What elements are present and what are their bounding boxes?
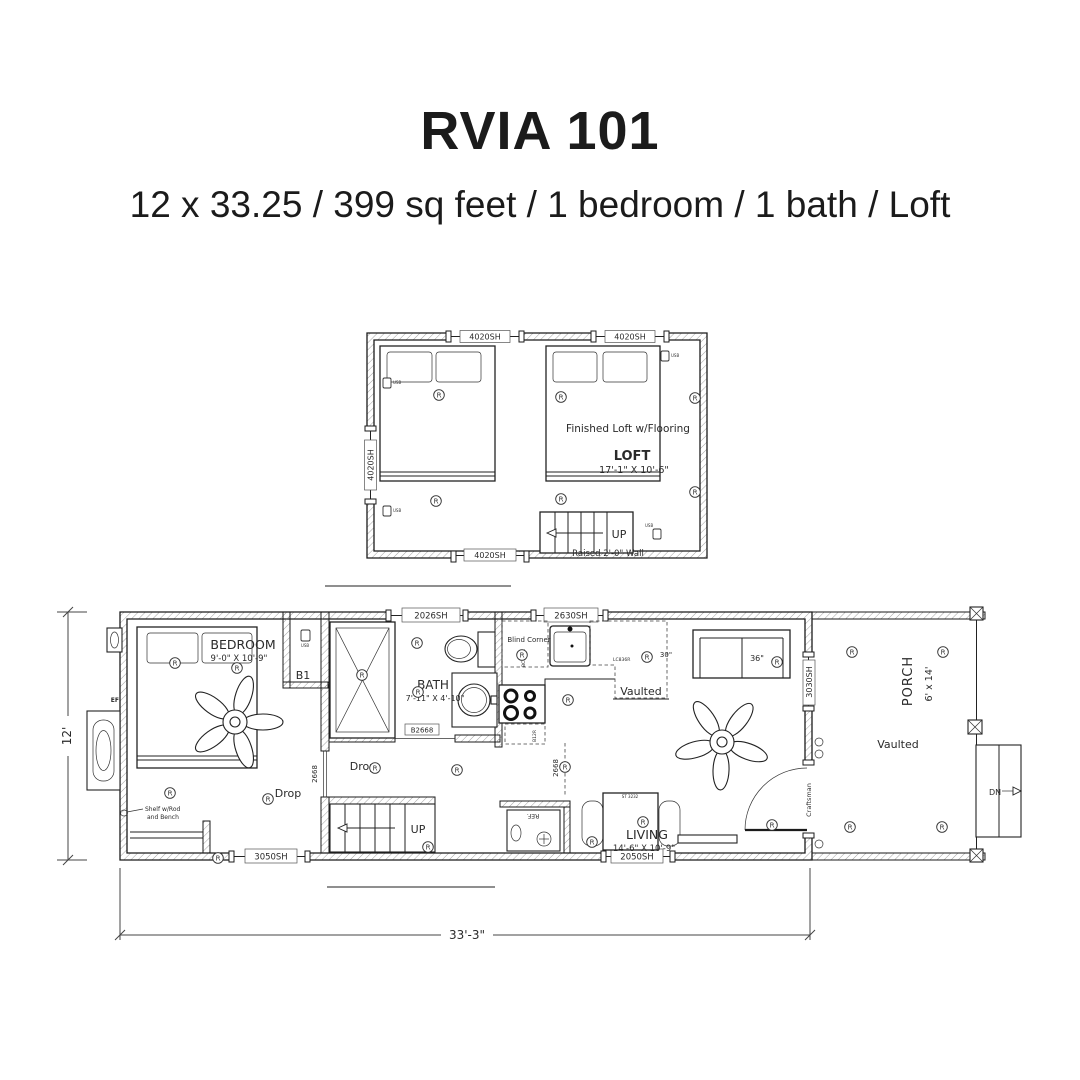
door-size-label: 2668: [311, 765, 319, 783]
recessed-light-symbol: R: [690, 393, 701, 404]
exterior-wall-fixture: [87, 711, 120, 790]
recessed-light-symbol: R: [413, 687, 424, 698]
svg-text:R: R: [168, 790, 173, 798]
recessed-light-symbol: R: [423, 842, 434, 853]
bedroom-name: BEDROOM: [210, 637, 275, 652]
door-size-label: B2668: [411, 727, 434, 735]
loft-window-label: 4020SH: [614, 333, 645, 342]
recessed-light-symbol: R: [556, 494, 567, 505]
porch-wall-outlets: [815, 738, 823, 848]
recessed-light-symbol: R: [560, 762, 571, 773]
loft-window-top-right: 4020SH: [591, 331, 669, 343]
svg-text:R: R: [770, 822, 775, 830]
recessed-light-symbol: R: [556, 392, 567, 403]
window-3050: 3050SH: [229, 849, 310, 863]
media-ledge: [678, 835, 737, 843]
porch-post: [970, 607, 983, 620]
loft-window-label: 4020SH: [474, 551, 505, 560]
svg-text:R: R: [693, 395, 698, 403]
usb-outlet: USB: [301, 630, 310, 648]
svg-text:R: R: [373, 765, 378, 773]
porch-name: PORCH: [901, 656, 916, 706]
recessed-light-symbol: R: [517, 650, 528, 661]
loft-window-left: 4020SH: [365, 426, 377, 504]
door-style-label: Craftsman: [805, 783, 813, 817]
window-label: 3030SH: [805, 666, 814, 697]
svg-text:USB: USB: [671, 353, 679, 358]
header: RVIA 101 12 x 33.25 / 399 sq feet / 1 be…: [0, 0, 1080, 226]
main-floor-plan: DN 2026SH 2630SH 3050SH: [55, 596, 1055, 956]
window-label: 2050SH: [620, 853, 653, 863]
living-dims: 14'-6" X 10'-9": [613, 844, 675, 854]
vaulted-label: Vaulted: [877, 738, 919, 751]
cabinet-label: B12R: [532, 730, 538, 742]
recessed-light-symbol: R: [938, 647, 949, 658]
dim-width-label: 12': [60, 727, 74, 746]
svg-text:R: R: [775, 659, 780, 667]
living-room: 36" ST 3232 LIVING 14'-6" X 10'-9": [582, 630, 790, 854]
svg-text:R: R: [173, 660, 178, 668]
svg-text:R: R: [848, 824, 853, 832]
toilet: [445, 632, 495, 667]
recessed-light-symbol: R: [263, 794, 274, 805]
window-label: 2026SH: [414, 612, 447, 622]
sofa-width-label: 36": [750, 654, 764, 663]
recessed-light-symbol: R: [638, 817, 649, 828]
svg-text:R: R: [563, 764, 568, 772]
svg-text:R: R: [850, 649, 855, 657]
recessed-light-symbol: R: [690, 487, 701, 498]
page-title: RVIA 101: [0, 100, 1080, 162]
window-label: 3050SH: [254, 853, 287, 863]
window-2026: 2026SH: [386, 608, 468, 622]
page-subtitle: 12 x 33.25 / 399 sq feet / 1 bedroom / 1…: [0, 184, 1080, 226]
loft-stairs: UP: [540, 512, 633, 553]
svg-text:R: R: [559, 496, 564, 504]
recessed-light-symbol: R: [845, 822, 856, 833]
usb-outlet: USB: [661, 351, 679, 361]
svg-text:R: R: [266, 796, 271, 804]
svg-text:R: R: [415, 640, 420, 648]
exterior-light-fixture: [107, 628, 122, 652]
main-stairs: UP: [330, 804, 435, 852]
svg-text:R: R: [437, 392, 442, 400]
recessed-light-symbol: R: [772, 657, 783, 668]
window-3030: 3030SH: [803, 652, 815, 711]
recessed-light-symbol: R: [563, 695, 574, 706]
porch-post: [968, 720, 982, 734]
recessed-light-symbol: R: [357, 670, 368, 681]
svg-text:R: R: [235, 665, 240, 673]
porch-dims: 6' x 14': [924, 666, 935, 701]
b1-label: B1: [296, 669, 311, 682]
dim-length-label: 33'-3": [449, 928, 485, 942]
loft-window-label: 4020SH: [469, 333, 500, 342]
ref-label: REF.: [527, 812, 539, 819]
shelf-label-line2: and Bench: [147, 814, 179, 821]
bedroom: BEDROOM 9'-0" X 10'-9" B1 Drop USB Shelf…: [121, 627, 311, 838]
pocket-door-bath: B2668: [395, 724, 455, 739]
svg-text:R: R: [641, 819, 646, 827]
recessed-light-symbol: R: [434, 390, 445, 401]
svg-text:R: R: [455, 767, 460, 775]
recessed-light-symbol: R: [370, 763, 381, 774]
svg-text:R: R: [520, 652, 525, 660]
porch: [812, 607, 985, 862]
recessed-light-symbol: R: [452, 765, 463, 776]
svg-text:R: R: [426, 844, 431, 852]
recessed-light-symbol: R: [232, 663, 243, 674]
ef-label: EF: [111, 697, 119, 704]
separator-line-top: [325, 585, 511, 587]
sofa: [693, 630, 790, 678]
raised-wall-label: Raised 2'-0" Wall: [572, 549, 644, 559]
svg-text:R: R: [645, 654, 650, 662]
svg-text:USB: USB: [645, 523, 653, 528]
loft-window-top-left: 4020SH: [446, 331, 524, 343]
svg-text:R: R: [216, 855, 221, 863]
dimension-width: 12': [57, 607, 87, 865]
porch-steps: DN: [976, 745, 1021, 837]
floor-plan-page: RVIA 101 12 x 33.25 / 399 sq feet / 1 be…: [0, 0, 1080, 1080]
recessed-light-symbol: R: [587, 837, 598, 848]
recessed-light-symbol: R: [937, 822, 948, 833]
door-size-label: 2668: [552, 759, 560, 777]
svg-text:R: R: [416, 689, 421, 697]
bedroom-dims: 9'-0" X 10'-9": [211, 654, 268, 664]
loft-window-label: 4020SH: [367, 449, 376, 480]
recessed-light-symbol: R: [847, 647, 858, 658]
svg-text:R: R: [590, 839, 595, 847]
cabinet-width-label: 30": [660, 651, 672, 659]
loft-bed-left: [380, 346, 495, 481]
drop-label: Drop: [275, 787, 301, 800]
svg-text:R: R: [360, 672, 365, 680]
svg-text:R: R: [566, 697, 571, 705]
entry-door: Craftsman: [745, 760, 814, 838]
window-2630: 2630SH: [531, 608, 608, 622]
window-label: 2630SH: [554, 612, 587, 622]
recessed-light-symbol: R: [767, 820, 778, 831]
loft-finished-label: Finished Loft w/Flooring: [566, 423, 690, 435]
loft-room-name: LOFT: [614, 449, 651, 464]
dn-label: DN: [989, 788, 1001, 797]
refrigerator: REF.: [507, 810, 560, 851]
usb-outlet: USB: [383, 506, 401, 516]
recessed-light-symbol: R: [213, 853, 224, 864]
svg-text:R: R: [941, 649, 946, 657]
cabinet-label: LC836R: [613, 657, 630, 663]
blind-corner-label: Blind Corner: [507, 636, 550, 644]
pocket-door-hall: 2668: [311, 751, 327, 797]
vaulted-label: Vaulted: [620, 685, 662, 698]
recessed-light-symbol: R: [170, 658, 181, 669]
loft-up-label: UP: [612, 528, 627, 541]
up-label: UP: [411, 823, 426, 836]
kitchen-sink: [550, 626, 590, 666]
porch-post: [970, 849, 983, 862]
loft-room-dims: 17'-1" X 10'-6": [599, 465, 669, 476]
svg-text:R: R: [693, 489, 698, 497]
ceiling-fan: [674, 698, 770, 791]
svg-text:R: R: [434, 498, 439, 506]
svg-text:R: R: [559, 394, 564, 402]
dimension-length: 33'-3": [115, 868, 815, 942]
stove: [499, 685, 545, 723]
table-label: ST 3232: [622, 794, 639, 799]
svg-text:USB: USB: [301, 643, 309, 648]
recessed-light-symbol: R: [431, 496, 442, 507]
svg-text:R: R: [940, 824, 945, 832]
loft-floor-plan: UP 4020SH 4020SH 4020SH: [363, 326, 709, 566]
recessed-light-symbol: R: [165, 788, 176, 799]
shelf-label-line1: Shelf w/Rod: [145, 806, 180, 813]
svg-text:USB: USB: [393, 508, 401, 513]
recessed-light-symbol: R: [412, 638, 423, 649]
svg-text:USB: USB: [393, 380, 401, 385]
usb-outlet: USB: [645, 523, 661, 539]
recessed-light-symbol: R: [642, 652, 653, 663]
living-name: LIVING: [626, 827, 668, 842]
